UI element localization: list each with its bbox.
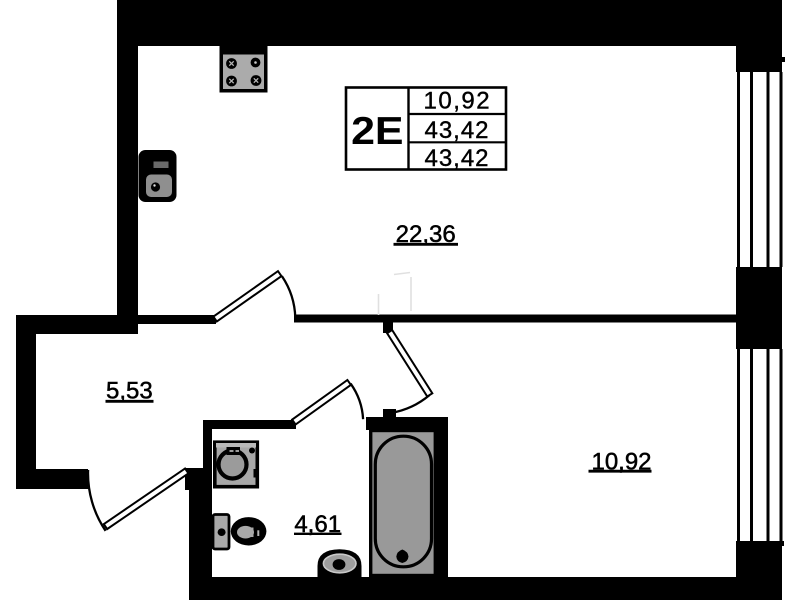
svg-text:10,92: 10,92 <box>424 88 492 115</box>
svg-text:43,42: 43,42 <box>424 145 489 172</box>
svg-text:43,42: 43,42 <box>424 117 489 144</box>
svg-text:2E: 2E <box>351 109 403 153</box>
